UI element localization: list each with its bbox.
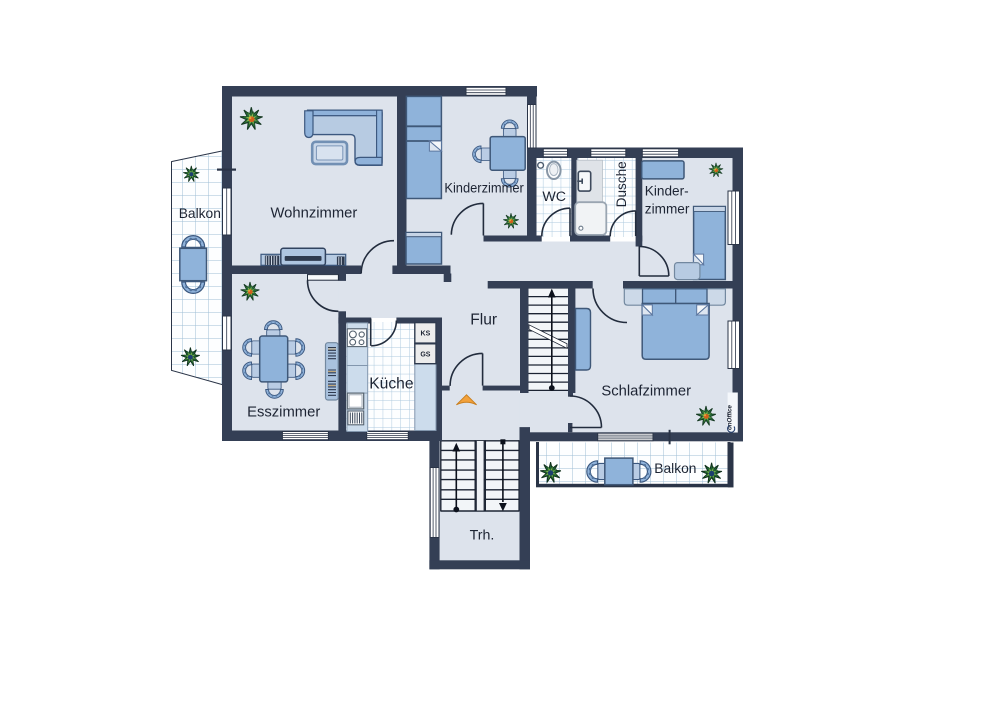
svg-text:GS: GS	[420, 351, 430, 358]
svg-text:Balkon: Balkon	[179, 206, 221, 221]
svg-text:Balkon: Balkon	[654, 461, 696, 476]
svg-text:Esszimmer: Esszimmer	[247, 405, 320, 421]
svg-text:Dusche: Dusche	[614, 161, 629, 207]
svg-text:Kinder-: Kinder-	[645, 184, 689, 199]
svg-text:Schlafzimmer: Schlafzimmer	[601, 383, 691, 399]
svg-text:zimmer: zimmer	[645, 202, 690, 217]
svg-text:Kinderzimmer: Kinderzimmer	[444, 181, 524, 196]
svg-text:KS: KS	[421, 330, 431, 337]
svg-text:onOffice: onOffice	[727, 404, 734, 430]
svg-text:WC: WC	[542, 189, 566, 205]
svg-text:Flur: Flur	[470, 311, 497, 328]
svg-text:Trh.: Trh.	[470, 527, 495, 543]
svg-text:Wohnzimmer: Wohnzimmer	[270, 205, 357, 221]
svg-text:Küche: Küche	[369, 375, 413, 392]
